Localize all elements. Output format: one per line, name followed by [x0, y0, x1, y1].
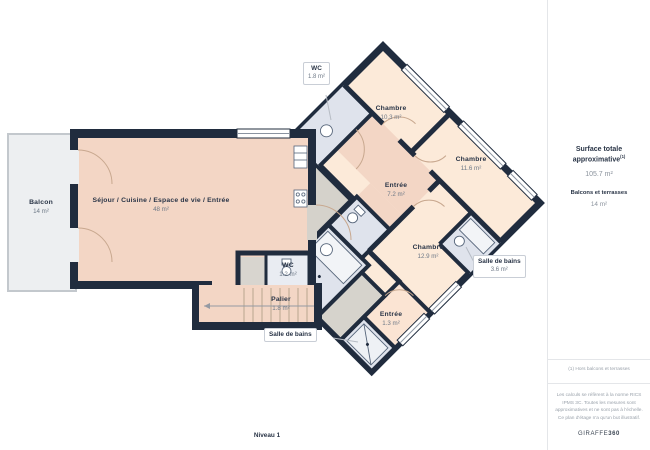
room-label-chambre-1: Chambre 10.3 m² [376, 105, 407, 122]
surface-title: Surface totale approximative(1) [548, 145, 650, 165]
terraces-title: Balcons et terrasses [548, 190, 650, 196]
disclaimer-block: Les calculs se réfèrent à la norme RICS … [548, 383, 650, 447]
summary-sidebar: Surface totale approximative(1) 105.7 m²… [547, 0, 650, 450]
level-label: Niveau 1 [254, 432, 280, 439]
label-box-salle-de-bains-bas: Salle de bains [264, 328, 317, 342]
label-box-wc-haut: WC 1.8 m² [303, 62, 330, 85]
surface-summary: Surface totale approximative(1) 105.7 m²… [548, 145, 650, 208]
footnote: (1) Hors balcons et terrasses [548, 359, 650, 379]
room-label-palier: Palier 1.8 m² [271, 296, 291, 313]
disclaimer-text: Les calculs se réfèrent à la norme RICS … [555, 393, 643, 421]
surface-footnote-marker: (1) [620, 154, 625, 159]
room-label-balcon: Balcon 14 m² [29, 199, 53, 216]
landing-stairs [192, 283, 322, 330]
room-label-entree: Entrée 7.2 m² [385, 182, 407, 199]
label-box-salle-de-bains-droite: Salle de bains 3.6 m² [473, 255, 526, 278]
room-label-sejour: Séjour / Cuisine / Espace de vie / Entré… [92, 197, 229, 214]
room-label-chambre-2: Chambre 11.6 m² [456, 156, 487, 173]
wc-closet-block [238, 253, 310, 289]
floorplan-page: Balcon 14 m² Séjour / Cuisine / Espace d… [0, 0, 650, 450]
surface-value: 105.7 m² [548, 171, 650, 178]
brand-logo: GIRAFFE360 [555, 430, 643, 440]
room-label-entree-petite: Entrée 1.3 m² [380, 311, 402, 328]
terraces-value: 14 m² [548, 201, 650, 208]
room-label-chambre-3: Chambre 12.9 m² [413, 244, 444, 261]
room-label-wc-bas: WC 1.2 m² [279, 262, 297, 279]
